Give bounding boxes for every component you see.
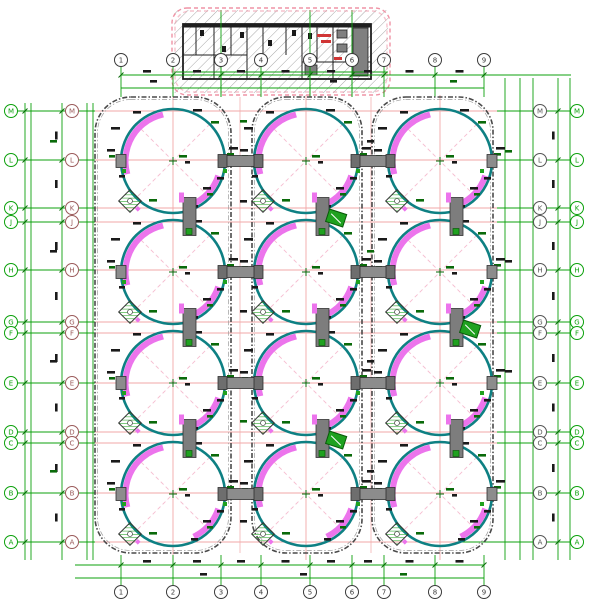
axis-bubble-B: B <box>534 487 547 500</box>
axis-bubble-A: A <box>571 536 584 549</box>
svg-text:B: B <box>70 489 75 497</box>
tank-enclosures <box>95 97 493 553</box>
axis-bubble-5: 5 <box>304 54 317 67</box>
axis-bubble-A: A <box>5 536 18 549</box>
axis-bubble-1: 1 <box>115 586 128 599</box>
axis-bubbles: 123456789123456789MMMMLLLLKKKKJJJJHHHHGG… <box>5 54 584 599</box>
svg-text:L: L <box>575 156 579 164</box>
axis-bubble-8: 8 <box>429 586 442 599</box>
svg-text:K: K <box>575 204 580 212</box>
svg-text:D: D <box>574 428 579 436</box>
svg-text:C: C <box>575 439 580 447</box>
svg-text:6: 6 <box>350 588 355 596</box>
axis-bubble-C: C <box>534 437 547 450</box>
svg-text:7: 7 <box>382 56 386 64</box>
axis-bubble-4: 4 <box>255 586 268 599</box>
svg-text:G: G <box>69 318 74 326</box>
svg-text:G: G <box>8 318 13 326</box>
axis-bubble-E: E <box>571 377 584 390</box>
svg-text:E: E <box>9 379 13 387</box>
svg-text:M: M <box>8 107 14 115</box>
axis-bubble-3: 3 <box>215 586 228 599</box>
svg-text:C: C <box>538 439 543 447</box>
axis-bubble-6: 6 <box>346 54 359 67</box>
axis-bubble-K: K <box>5 202 18 215</box>
axis-bubble-K: K <box>571 202 584 215</box>
axis-bubble-2: 2 <box>167 54 180 67</box>
axis-bubble-7: 7 <box>378 586 391 599</box>
axis-bubble-M: M <box>66 105 79 118</box>
svg-text:D: D <box>8 428 13 436</box>
axis-bubble-F: F <box>534 327 547 340</box>
svg-text:6: 6 <box>350 56 355 64</box>
svg-text:1: 1 <box>119 588 123 596</box>
svg-text:7: 7 <box>382 588 386 596</box>
axis-bubble-C: C <box>66 437 79 450</box>
axis-bubble-H: H <box>571 264 584 277</box>
axis-bubble-M: M <box>571 105 584 118</box>
axis-bubble-K: K <box>534 202 547 215</box>
svg-text:D: D <box>537 428 542 436</box>
svg-text:M: M <box>574 107 580 115</box>
svg-text:B: B <box>9 489 14 497</box>
axis-bubble-4: 4 <box>255 54 268 67</box>
svg-text:K: K <box>538 204 543 212</box>
axis-bubble-L: L <box>571 154 584 167</box>
svg-text:H: H <box>574 266 579 274</box>
axis-bubble-3: 3 <box>215 54 228 67</box>
axis-bubble-K: K <box>66 202 79 215</box>
svg-text:L: L <box>9 156 13 164</box>
svg-text:B: B <box>538 489 543 497</box>
axis-bubble-6: 6 <box>346 586 359 599</box>
axis-bubble-E: E <box>534 377 547 390</box>
svg-text:3: 3 <box>219 588 223 596</box>
axis-bubble-C: C <box>5 437 18 450</box>
svg-text:M: M <box>69 107 75 115</box>
svg-text:5: 5 <box>308 588 312 596</box>
svg-text:1: 1 <box>119 56 123 64</box>
axis-bubble-9: 9 <box>478 586 491 599</box>
axis-bubble-2: 2 <box>167 586 180 599</box>
svg-text:J: J <box>70 218 73 226</box>
axis-bubble-M: M <box>5 105 18 118</box>
axis-bubble-7: 7 <box>378 54 391 67</box>
axis-bubble-A: A <box>534 536 547 549</box>
axis-bubble-B: B <box>571 487 584 500</box>
svg-text:J: J <box>538 218 541 226</box>
svg-text:F: F <box>70 329 74 337</box>
axis-bubble-H: H <box>5 264 18 277</box>
svg-text:3: 3 <box>219 56 223 64</box>
axis-bubble-M: M <box>534 105 547 118</box>
axis-bubble-8: 8 <box>429 54 442 67</box>
axis-bubble-J: J <box>66 216 79 229</box>
svg-text:A: A <box>575 538 580 546</box>
axis-bubble-F: F <box>66 327 79 340</box>
axis-bubble-B: B <box>5 487 18 500</box>
axis-bubble-L: L <box>5 154 18 167</box>
svg-text:A: A <box>9 538 14 546</box>
axis-bubble-9: 9 <box>478 54 491 67</box>
svg-text:H: H <box>69 266 74 274</box>
svg-text:F: F <box>9 329 13 337</box>
axis-bubble-L: L <box>66 154 79 167</box>
svg-text:E: E <box>70 379 74 387</box>
axis-bubble-E: E <box>66 377 79 390</box>
axis-bubble-1: 1 <box>115 54 128 67</box>
svg-text:4: 4 <box>259 56 264 64</box>
svg-text:K: K <box>70 204 75 212</box>
svg-text:8: 8 <box>433 588 437 596</box>
axis-bubble-5: 5 <box>304 586 317 599</box>
tank-farm-plan-drawing: 123456789123456789MMMMLLLLKKKKJJJJHHHHGG… <box>0 0 600 600</box>
axis-bubble-F: F <box>571 327 584 340</box>
top-detail-inset <box>172 8 390 97</box>
svg-text:E: E <box>538 379 542 387</box>
svg-text:H: H <box>8 266 13 274</box>
svg-text:B: B <box>575 489 580 497</box>
axis-bubble-B: B <box>66 487 79 500</box>
axis-bubble-E: E <box>5 377 18 390</box>
svg-text:F: F <box>538 329 542 337</box>
svg-text:F: F <box>575 329 579 337</box>
svg-text:H: H <box>537 266 542 274</box>
svg-text:A: A <box>70 538 75 546</box>
svg-text:4: 4 <box>259 588 264 596</box>
axis-bubble-F: F <box>5 327 18 340</box>
svg-text:L: L <box>70 156 74 164</box>
svg-text:A: A <box>538 538 543 546</box>
svg-text:M: M <box>537 107 543 115</box>
axis-bubble-L: L <box>534 154 547 167</box>
svg-text:K: K <box>9 204 14 212</box>
axis-bubble-H: H <box>534 264 547 277</box>
svg-text:J: J <box>575 218 578 226</box>
svg-text:9: 9 <box>482 56 486 64</box>
svg-text:8: 8 <box>433 56 437 64</box>
svg-text:G: G <box>537 318 542 326</box>
axis-bubble-A: A <box>66 536 79 549</box>
svg-text:G: G <box>574 318 579 326</box>
axis-bubble-H: H <box>66 264 79 277</box>
svg-text:L: L <box>538 156 542 164</box>
cad-floor-plan-viewport: 123456789123456789MMMMLLLLKKKKJJJJHHHHGG… <box>0 0 600 600</box>
axis-bubble-J: J <box>5 216 18 229</box>
axis-bubble-C: C <box>571 437 584 450</box>
svg-text:5: 5 <box>308 56 312 64</box>
axis-bubble-J: J <box>534 216 547 229</box>
svg-text:2: 2 <box>171 56 175 64</box>
svg-text:J: J <box>9 218 12 226</box>
axis-bubble-J: J <box>571 216 584 229</box>
svg-text:2: 2 <box>171 588 175 596</box>
svg-text:C: C <box>9 439 14 447</box>
svg-text:E: E <box>575 379 579 387</box>
svg-text:C: C <box>70 439 75 447</box>
svg-text:9: 9 <box>482 588 486 596</box>
svg-text:D: D <box>69 428 74 436</box>
